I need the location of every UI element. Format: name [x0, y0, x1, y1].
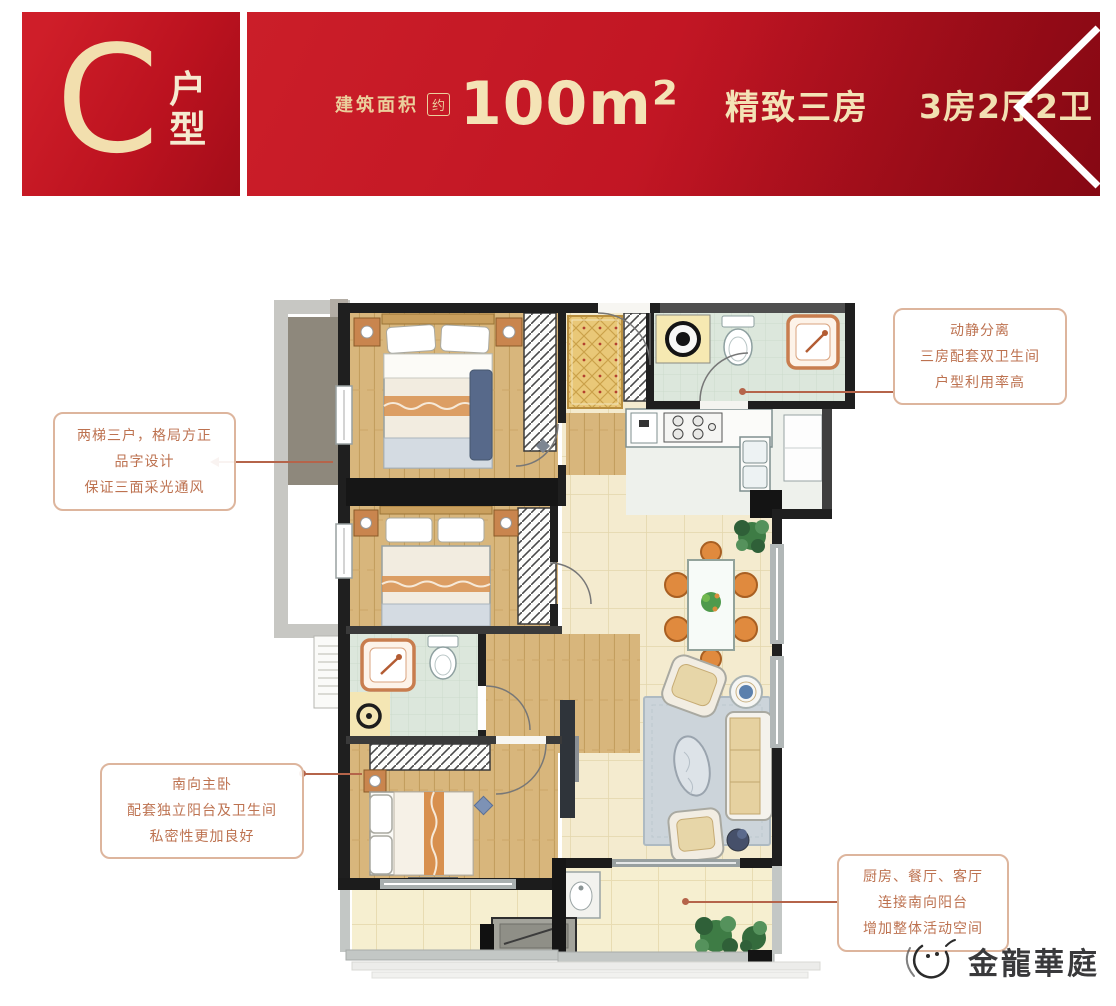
leader-dot-top-right [739, 388, 746, 395]
callout-line: 三房配套双卫生间 [895, 344, 1065, 370]
callout-bottom-left: 南向主卧 配套独立阳台及卫生间 私密性更加良好 [100, 763, 304, 859]
callout-line: 动静分离 [895, 318, 1065, 344]
leader-dot-bottom-right [682, 898, 689, 905]
armchair [667, 807, 724, 862]
callout-left: 两梯三户，格局方正 品字设计 保证三面采光通风 [53, 412, 236, 511]
entry-rug [568, 316, 622, 408]
callout-top-right: 动静分离 三房配套双卫生间 户型利用率高 [893, 308, 1067, 405]
callout-line: 保证三面采光通风 [55, 475, 234, 501]
callout-line: 户型利用率高 [895, 370, 1065, 396]
floor-plan-flyer: C 户 型 建筑面积 约 100m² 精致三房 3房2厅2卫 [0, 0, 1116, 1006]
leader-line-top-right [742, 391, 893, 393]
sketch-bird-logo-icon [902, 932, 960, 990]
brand-logo: 金龍華庭 [902, 932, 1100, 990]
callout-line: 配套独立阳台及卫生间 [102, 798, 302, 824]
callout-line: 厨房、餐厅、客厅 [839, 864, 1007, 890]
leader-line-bottom-left [302, 773, 362, 775]
brand-name: 金龍華庭 [968, 939, 1100, 983]
callout-line: 南向主卧 [102, 772, 302, 798]
callout-line: 连接南向阳台 [839, 890, 1007, 916]
plant-icon [734, 520, 769, 553]
leader-line-bottom-right [685, 901, 837, 903]
callout-line: 品字设计 [55, 449, 234, 475]
callout-line: 两梯三户，格局方正 [55, 423, 234, 449]
callout-line: 私密性更加良好 [102, 824, 302, 850]
